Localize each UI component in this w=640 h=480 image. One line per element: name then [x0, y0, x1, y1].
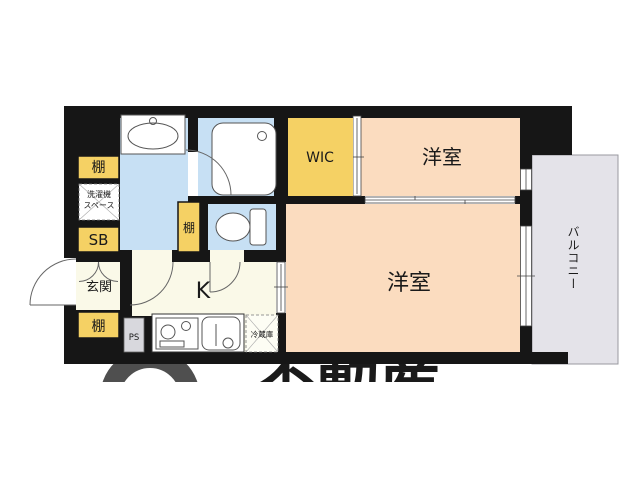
washer-space-label-1: 洗濯機 [87, 189, 111, 199]
wall-right-3 [520, 326, 532, 360]
western-room-top-label: 洋室 [422, 145, 462, 169]
wall-left-lower [64, 305, 76, 352]
wall-right-2 [520, 190, 532, 226]
washer-space-label-2: スペース [83, 201, 114, 210]
balcony-label: バルコニー [566, 226, 580, 291]
refrigerator-label: 冷蔵庫 [251, 329, 274, 339]
wall-kitchen-room-upper [276, 204, 286, 262]
wall-toilet-bottom [244, 250, 278, 262]
kitchen-sink [202, 317, 240, 350]
shelf-label-top: 棚 [92, 160, 106, 176]
watermark-logo-fragment [110, 358, 190, 438]
stove-unit [156, 318, 198, 349]
wall-right-1 [520, 155, 532, 169]
shelf-label-middle: 棚 [183, 220, 195, 235]
entrance-label: 玄関 [86, 280, 112, 295]
western-room-main-label: 洋室 [387, 271, 431, 296]
wic-label: WIC [306, 150, 334, 166]
shoe-box-label: SB [89, 231, 109, 249]
washbasin-bowl [128, 123, 178, 149]
kitchen-label: K [196, 279, 211, 304]
wall-left-upper [64, 106, 76, 258]
toilet-tank [250, 209, 266, 245]
wall-bath-divider [188, 114, 198, 152]
wall-toilet-left [200, 202, 208, 252]
wall-top-right-block [520, 106, 572, 155]
wall-room-partition-left [288, 196, 365, 204]
shelf-label-bottom: 棚 [92, 319, 106, 335]
entrance-door-arc [30, 259, 76, 305]
bath-door-gap [188, 152, 198, 196]
wall-bottom [64, 352, 568, 364]
toilet-bowl [216, 213, 250, 241]
wall-bath-toilet [188, 196, 288, 204]
pipe-space-label: PS [129, 333, 140, 343]
floorplan-canvas: 不動産 [0, 0, 640, 480]
